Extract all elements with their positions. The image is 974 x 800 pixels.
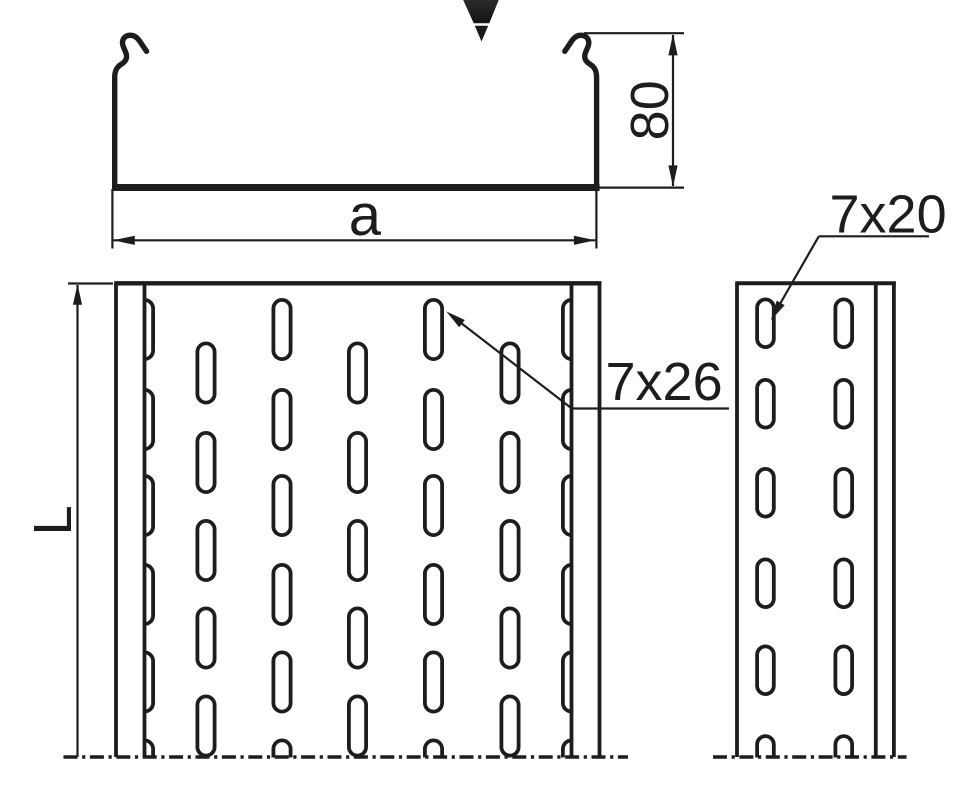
- svg-text:L: L: [23, 505, 83, 535]
- svg-text:7x26: 7x26: [606, 352, 723, 412]
- svg-text:a: a: [349, 183, 382, 248]
- svg-text:80: 80: [620, 80, 680, 140]
